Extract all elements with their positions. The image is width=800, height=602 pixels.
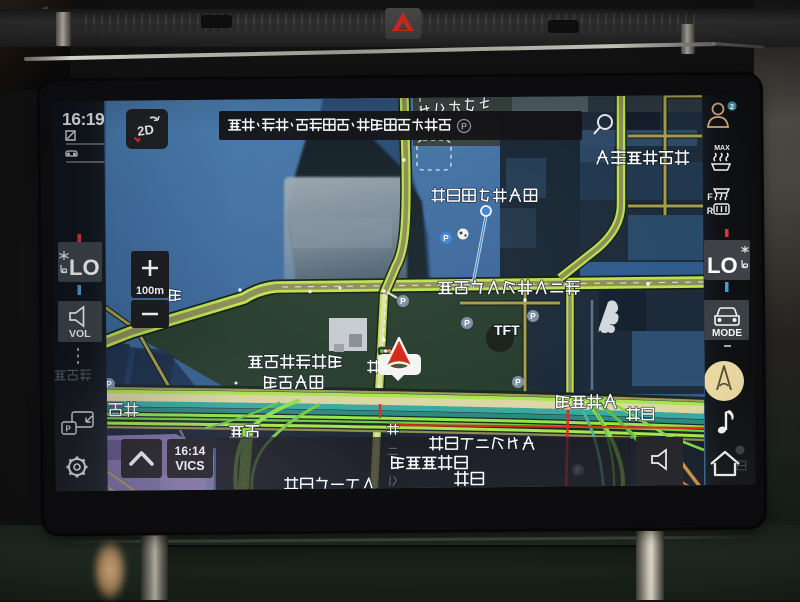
svg-text:16:14: 16:14	[175, 444, 206, 458]
svg-text:LO: LO	[69, 255, 100, 280]
svg-text:VICS: VICS	[175, 459, 204, 473]
svg-text:2: 2	[730, 102, 734, 111]
svg-text:P: P	[515, 377, 521, 387]
svg-text:P: P	[443, 233, 449, 243]
svg-text:VOL: VOL	[69, 328, 91, 340]
svg-text:LO: LO	[707, 253, 738, 278]
svg-text:2D: 2D	[136, 122, 155, 139]
svg-text:P: P	[106, 379, 112, 389]
svg-text:100m: 100m	[136, 285, 164, 297]
svg-text:16:19: 16:19	[62, 109, 105, 129]
svg-text:TFT: TFT	[494, 322, 520, 338]
svg-text:P: P	[66, 425, 72, 434]
svg-text:P: P	[464, 318, 470, 328]
svg-text:F: F	[707, 192, 713, 202]
svg-text:R: R	[707, 206, 714, 216]
svg-text:P: P	[530, 311, 536, 321]
svg-text:MODE: MODE	[712, 328, 742, 339]
svg-text:P: P	[400, 296, 406, 306]
svg-text:P: P	[461, 122, 467, 132]
svg-text:MAX: MAX	[714, 145, 730, 152]
